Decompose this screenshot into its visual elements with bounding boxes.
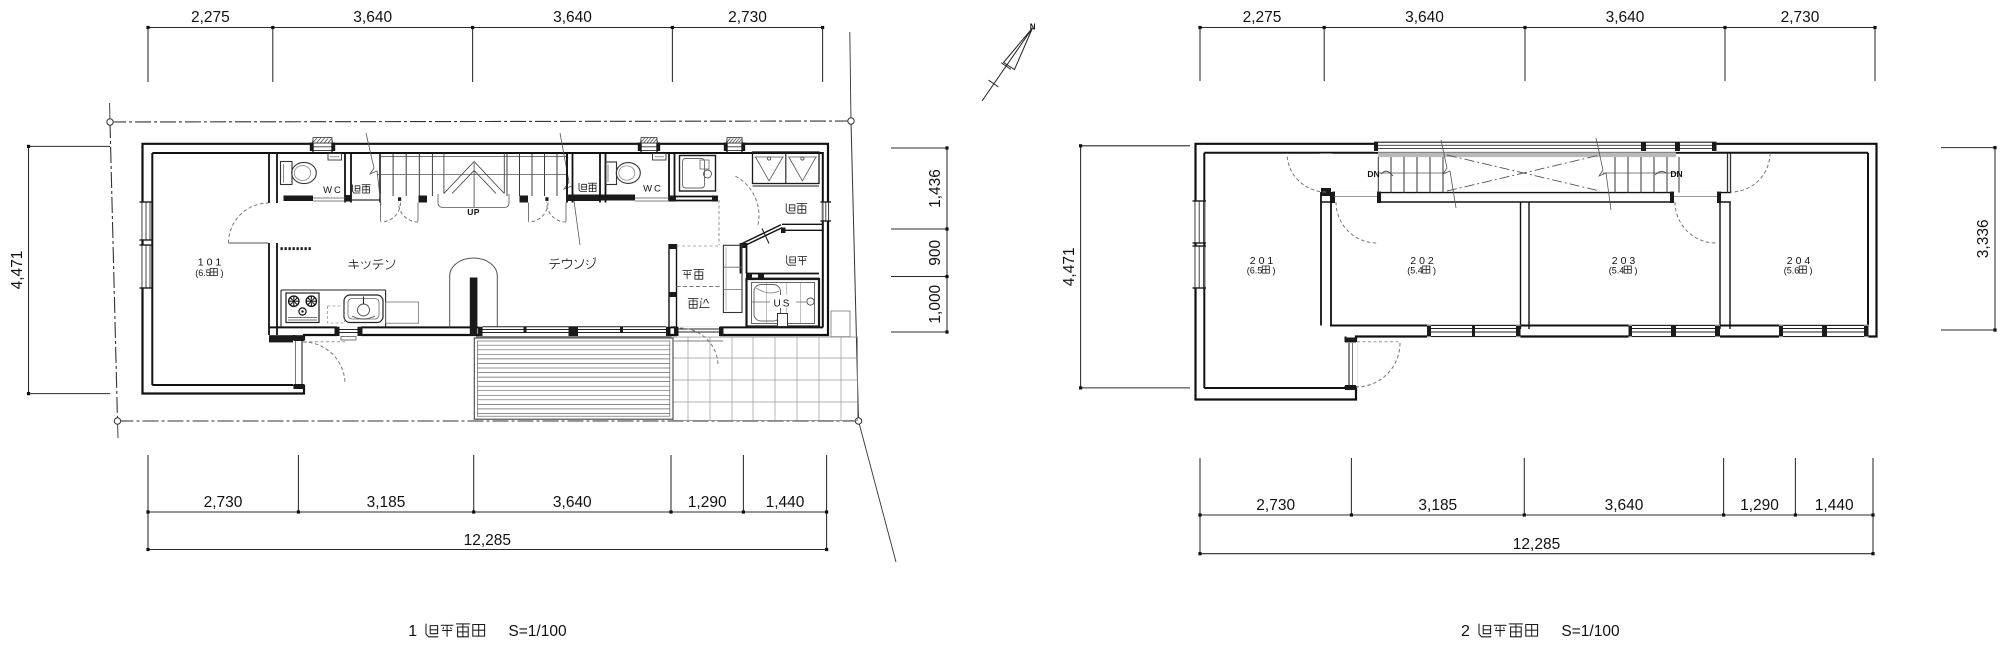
svg-text:900: 900 — [927, 239, 944, 265]
svg-text:1: 1 — [408, 623, 417, 640]
svg-text:WC: WC — [643, 184, 663, 195]
svg-text:DN: DN — [1670, 169, 1682, 179]
svg-text:N: N — [1030, 23, 1036, 32]
svg-text:1,436: 1,436 — [927, 169, 944, 208]
svg-text:): ) — [1810, 266, 1813, 276]
svg-text:2,730: 2,730 — [728, 9, 767, 26]
svg-text:(5.4: (5.4 — [1609, 266, 1625, 276]
svg-text:1,290: 1,290 — [688, 494, 727, 511]
svg-text:12,285: 12,285 — [1513, 536, 1560, 553]
svg-text:2,730: 2,730 — [1256, 497, 1295, 514]
svg-text:3,640: 3,640 — [1605, 497, 1644, 514]
svg-text:1,440: 1,440 — [766, 494, 805, 511]
svg-text:WC: WC — [323, 185, 343, 196]
svg-text:2,275: 2,275 — [1243, 9, 1282, 26]
svg-text:US: US — [774, 299, 792, 310]
svg-text:3,640: 3,640 — [553, 9, 592, 26]
svg-text:2,730: 2,730 — [1781, 9, 1820, 26]
svg-text:(5.4: (5.4 — [1407, 266, 1423, 276]
svg-text:2,730: 2,730 — [204, 494, 243, 511]
svg-text:1,290: 1,290 — [1740, 497, 1779, 514]
svg-text:1,000: 1,000 — [927, 284, 944, 323]
svg-text:(6.5: (6.5 — [1247, 266, 1263, 276]
svg-text:101: 101 — [198, 257, 225, 269]
svg-text:3,185: 3,185 — [1418, 497, 1457, 514]
svg-text:12,285: 12,285 — [464, 532, 511, 549]
svg-text:S=1/100: S=1/100 — [1561, 623, 1620, 640]
svg-text:3,640: 3,640 — [353, 9, 392, 26]
svg-text:4,471: 4,471 — [9, 251, 26, 290]
svg-text:(5.6: (5.6 — [1784, 266, 1800, 276]
svg-text:): ) — [221, 268, 224, 278]
svg-text:DN: DN — [1367, 169, 1379, 179]
svg-text:3,185: 3,185 — [367, 494, 406, 511]
svg-text:(6.5: (6.5 — [195, 268, 211, 278]
svg-text:3,640: 3,640 — [1405, 9, 1444, 26]
svg-text:UP: UP — [467, 207, 479, 217]
svg-text:S=1/100: S=1/100 — [508, 623, 567, 640]
svg-text:3,336: 3,336 — [1975, 219, 1992, 258]
svg-text:3,640: 3,640 — [553, 494, 592, 511]
svg-text:): ) — [1635, 266, 1638, 276]
svg-text:): ) — [1433, 266, 1436, 276]
svg-text:4,471: 4,471 — [1061, 247, 1078, 286]
svg-text:2: 2 — [1461, 623, 1470, 640]
svg-text:): ) — [1273, 266, 1276, 276]
svg-text:3,640: 3,640 — [1606, 9, 1645, 26]
svg-text:1,440: 1,440 — [1815, 497, 1854, 514]
svg-text:2,275: 2,275 — [191, 9, 230, 26]
